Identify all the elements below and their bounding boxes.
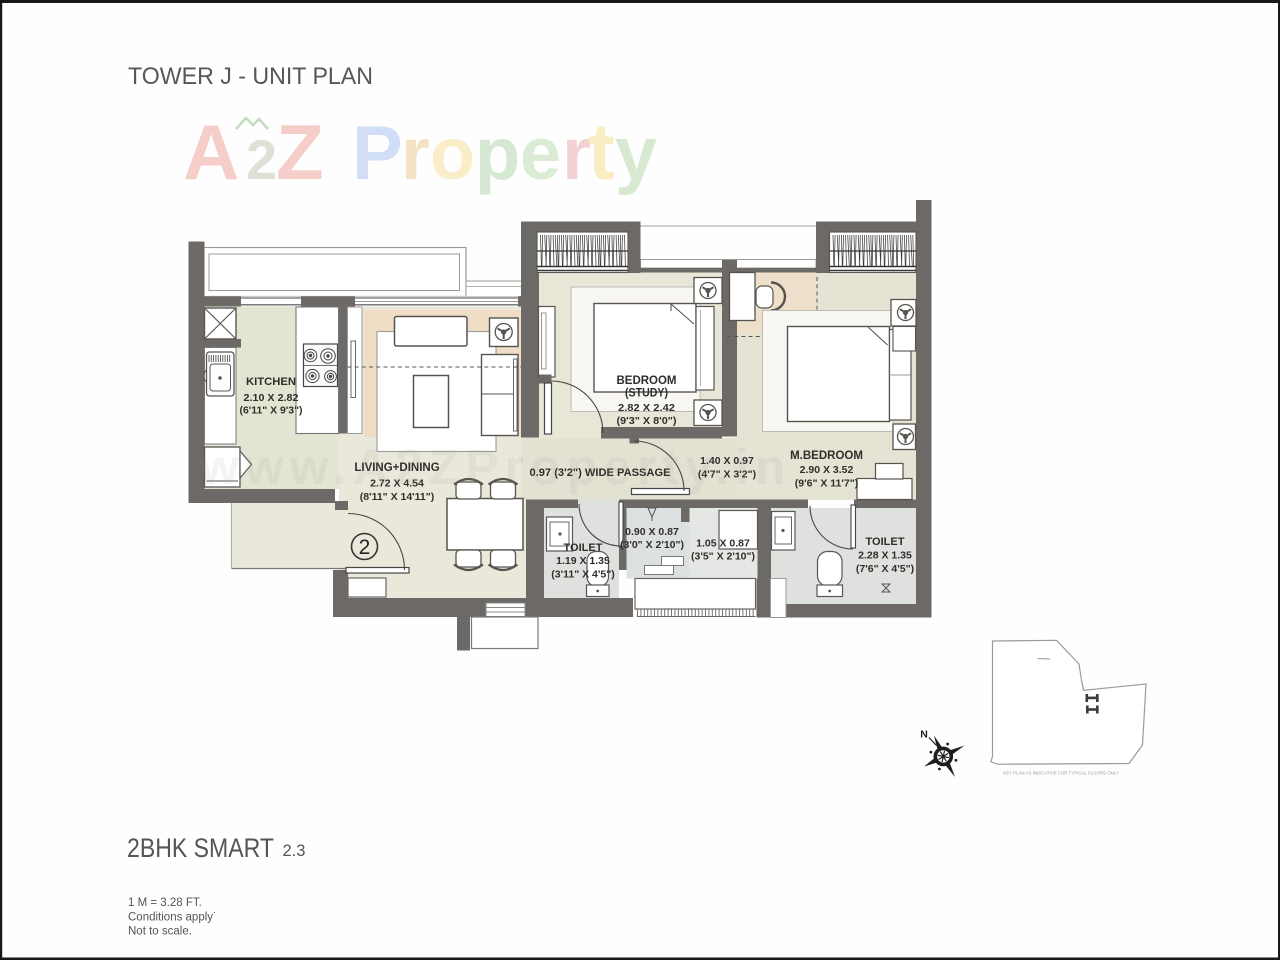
svg-text:p: p: [475, 112, 520, 195]
svg-text:(3'0" X 2'10"): (3'0" X 2'10"): [620, 539, 684, 551]
svg-text:(STUDY): (STUDY): [625, 388, 668, 400]
svg-text:2.3: 2.3: [283, 842, 306, 860]
svg-text:2.10 X 2.82: 2.10 X 2.82: [244, 392, 299, 404]
svg-text:Not to scale.: Not to scale.: [128, 926, 192, 938]
svg-text:Z: Z: [276, 108, 324, 196]
svg-text:0.90 X 0.87: 0.90 X 0.87: [625, 526, 679, 538]
svg-text:2: 2: [359, 536, 371, 559]
svg-text:KEY PLAN AS INDICATIVE FOR TYP: KEY PLAN AS INDICATIVE FOR TYPICAL FLOOR…: [1003, 771, 1119, 776]
svg-text:M.BEDROOM: M.BEDROOM: [790, 450, 863, 462]
svg-text:A: A: [183, 108, 239, 196]
svg-text:r: r: [401, 112, 430, 195]
svg-text:r: r: [562, 112, 591, 195]
svg-text:(3'5" X 2'10"): (3'5" X 2'10"): [691, 551, 755, 563]
svg-text:KITCHEN: KITCHEN: [246, 376, 296, 388]
svg-text:2: 2: [246, 128, 277, 191]
svg-text:1 M = 3.28 FT.: 1 M = 3.28 FT.: [128, 897, 202, 909]
svg-text:2.90 X 3.52: 2.90 X 3.52: [800, 464, 854, 476]
svg-text:(6'11" X 9'3"): (6'11" X 9'3"): [240, 405, 303, 417]
svg-text:2.82 X 2.42: 2.82 X 2.42: [618, 402, 675, 414]
svg-text:t: t: [588, 107, 615, 196]
svg-text:(9'6" X 11'7"): (9'6" X 11'7"): [795, 478, 858, 490]
svg-text:2BHK SMART: 2BHK SMART: [127, 833, 274, 863]
svg-text:(7'6" X 4'5"): (7'6" X 4'5"): [856, 563, 914, 575]
svg-text:www.A2ZProperty.in: www.A2ZProperty.in: [199, 439, 791, 495]
svg-text:P: P: [352, 111, 403, 196]
svg-text:BEDROOM: BEDROOM: [617, 375, 677, 387]
svg-text:(9'3" X 8'0"): (9'3" X 8'0"): [617, 415, 677, 427]
svg-text:2.28 X 1.35: 2.28 X 1.35: [858, 550, 912, 562]
svg-text:Conditions apply˙: Conditions apply˙: [128, 912, 217, 924]
svg-text:o: o: [430, 112, 475, 195]
svg-text:e: e: [520, 112, 561, 195]
svg-text:1.19 X 1.35: 1.19 X 1.35: [556, 555, 610, 567]
svg-text:TOWER J - UNIT PLAN: TOWER J - UNIT PLAN: [128, 63, 373, 90]
svg-text:TOILET: TOILET: [866, 536, 905, 548]
svg-text:TOILET: TOILET: [564, 542, 603, 554]
svg-text:N: N: [920, 729, 928, 741]
svg-text:(3'11" X 4'5"): (3'11" X 4'5"): [551, 569, 614, 581]
svg-text:y: y: [615, 111, 657, 196]
svg-text:1.05 X 0.87: 1.05 X 0.87: [696, 538, 750, 550]
